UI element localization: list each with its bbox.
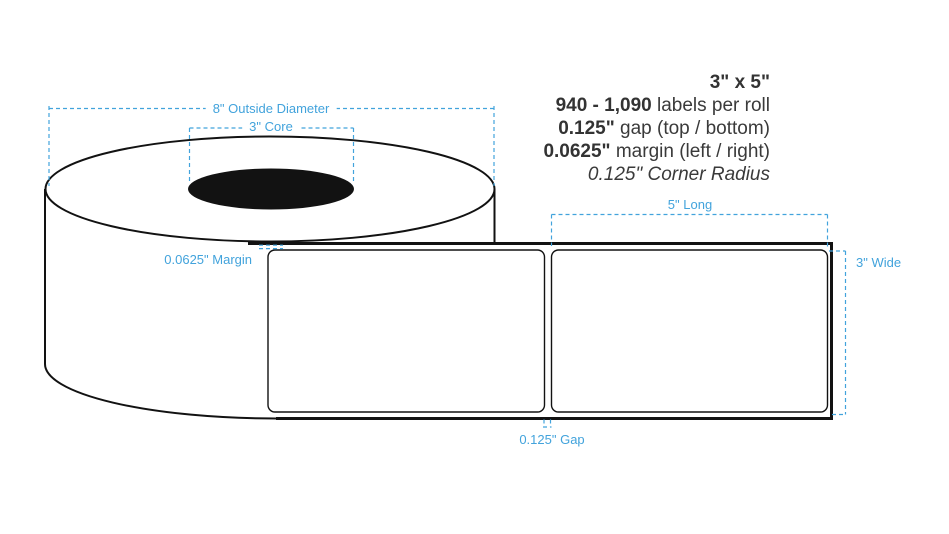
label-2 — [552, 250, 828, 412]
spec-margin: 0.0625" margin (left / right) — [543, 140, 770, 163]
label-1 — [268, 250, 545, 412]
margin-bracket — [259, 245, 283, 248]
spec-size: 3" x 5" — [543, 71, 770, 94]
width-label: 3" Wide — [856, 256, 901, 270]
core-label: 3" Core — [242, 120, 300, 134]
outside-diameter-label: 8" Outside Diameter — [206, 102, 337, 116]
spec-block: 3" x 5" 940 - 1,090 labels per roll 0.12… — [543, 71, 770, 186]
spec-quantity: 940 - 1,090 labels per roll — [543, 94, 770, 117]
roll-core-hole — [188, 169, 354, 210]
label-roll-diagram: 8" Outside Diameter 3" Core 0.0625" Marg… — [0, 0, 949, 534]
margin-label: 0.0625" Margin — [164, 253, 252, 267]
roll-bottom-curve — [45, 364, 276, 419]
spec-gap: 0.125" gap (top / bottom) — [543, 117, 770, 140]
gap-bracket — [543, 420, 552, 428]
spec-corner-radius: 0.125" Corner Radius — [543, 163, 770, 186]
length-label: 5" Long — [668, 198, 712, 212]
gap-label: 0.125" Gap — [519, 433, 584, 447]
diagram-artwork — [0, 0, 949, 534]
